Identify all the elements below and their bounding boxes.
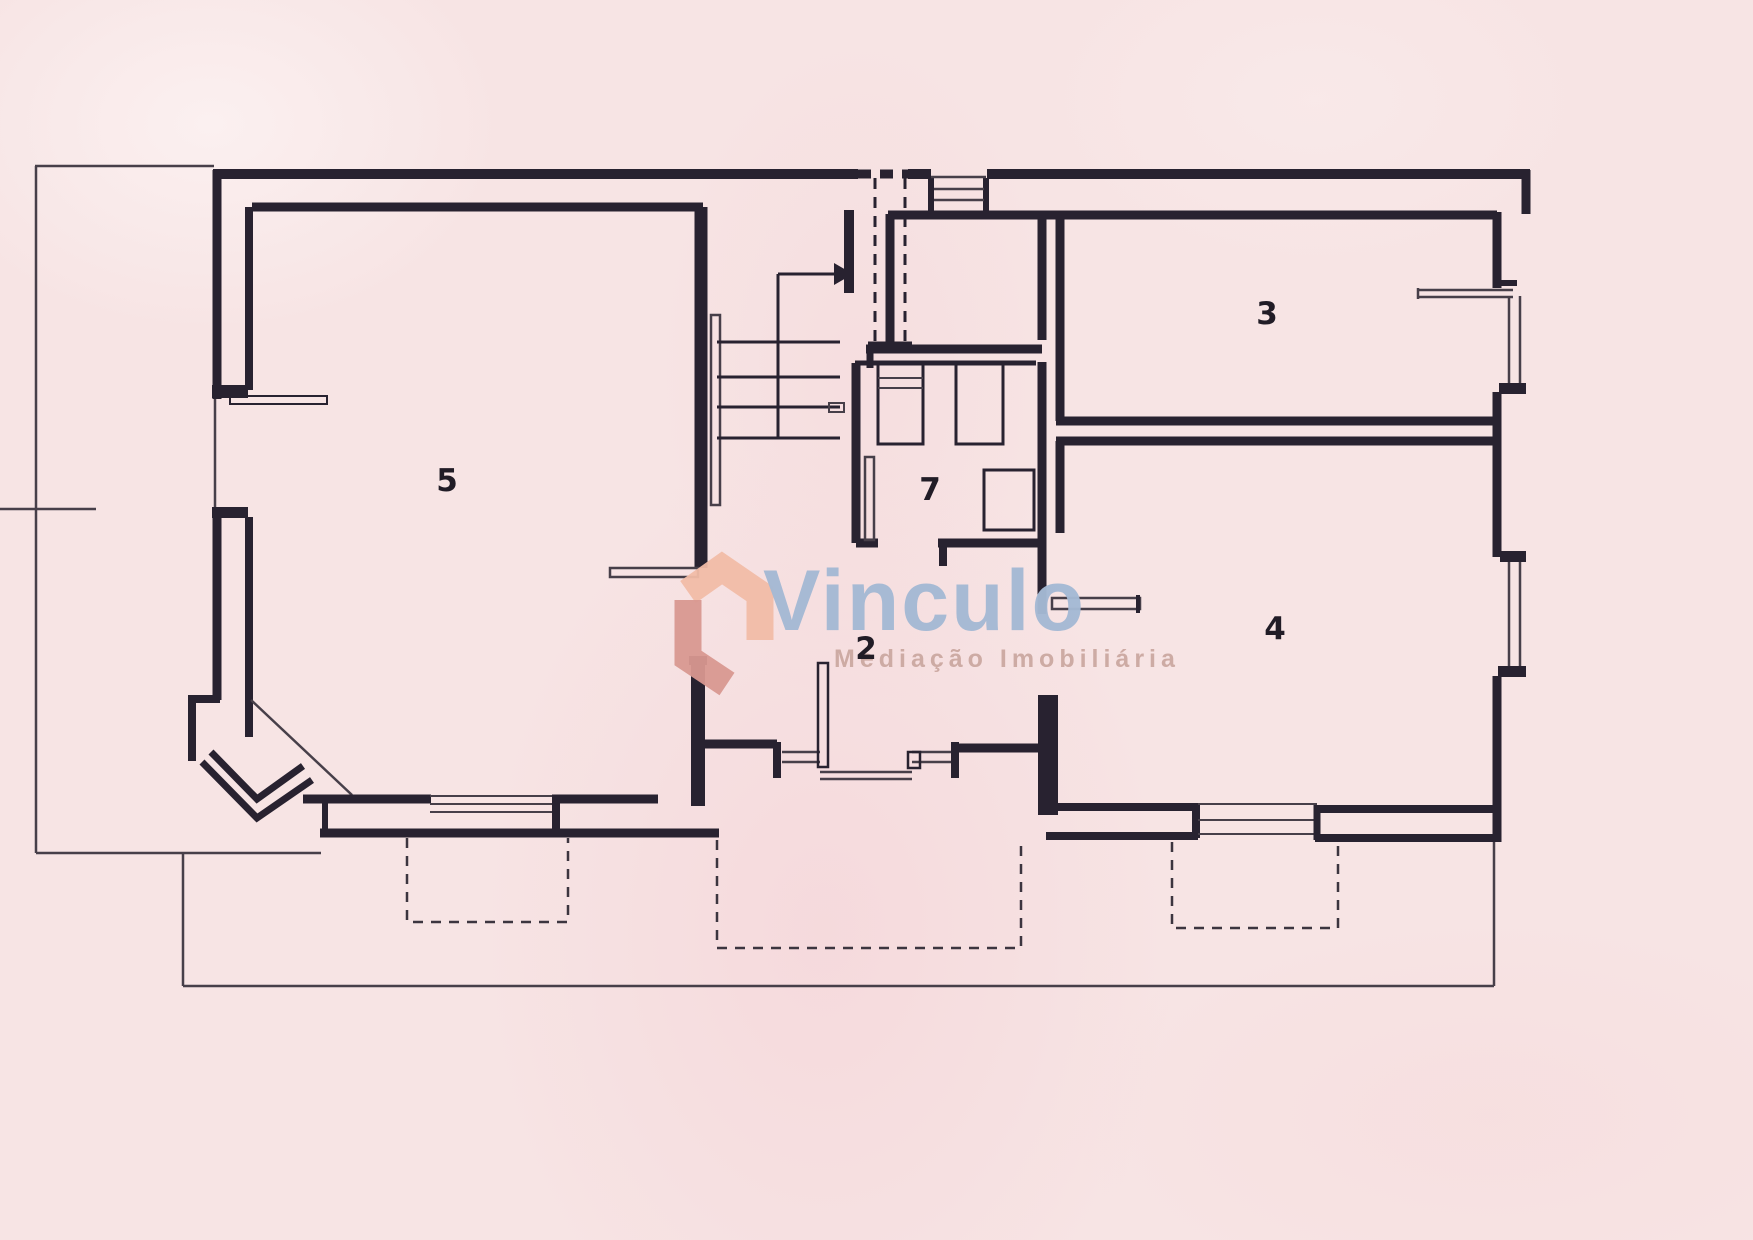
window-right-room3	[1499, 296, 1526, 394]
dashed-porch-right	[1172, 842, 1338, 928]
floor-plan-drawing	[0, 0, 1753, 1240]
window-bottom-right	[1198, 804, 1317, 834]
door-leaf-room5	[610, 568, 698, 577]
room-label-7: 7	[919, 472, 941, 508]
bathtub-fixture	[878, 364, 923, 444]
rooms-3-4-divider	[1056, 421, 1499, 441]
window-bottom-left	[430, 796, 553, 812]
bathroom-room7	[855, 349, 1042, 566]
wall-room4-west-lower	[1038, 695, 1058, 815]
door-steps-right	[912, 752, 951, 762]
entrance-steps	[931, 177, 986, 213]
dashed-porches	[407, 838, 1338, 948]
dashed-porch-left	[407, 838, 568, 922]
corner-bay-diagonal	[251, 700, 352, 795]
central-divider	[1038, 214, 1140, 815]
door-leaf-room7	[865, 457, 874, 540]
dashed-porch-center	[717, 840, 1021, 948]
staircase-hall	[610, 178, 912, 577]
window-right-room4	[1498, 551, 1526, 677]
site-boundary	[0, 166, 1494, 986]
inner-walls-top	[252, 207, 1497, 215]
terrace-threshold	[820, 772, 912, 779]
door-steps-left	[782, 752, 820, 762]
door-jamb-block-right	[908, 752, 920, 768]
room-label-3: 3	[1256, 296, 1278, 332]
room-label-5: 5	[436, 463, 458, 499]
room-label-4: 4	[1264, 611, 1286, 647]
washbasin-fixture	[984, 470, 1034, 530]
door-leaf-room4	[1052, 598, 1140, 609]
window-sill-room3	[1418, 288, 1513, 299]
shower-fixture	[956, 364, 1003, 444]
room-label-2: 2	[855, 631, 877, 667]
